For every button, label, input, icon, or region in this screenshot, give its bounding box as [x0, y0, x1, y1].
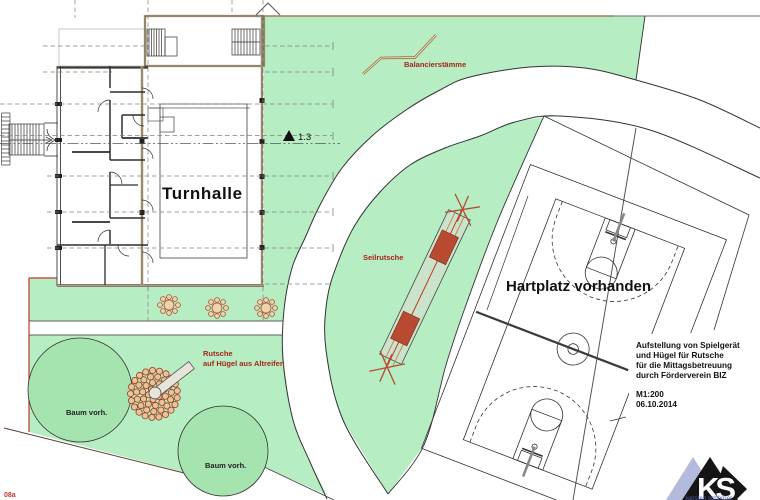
- svg-text:kersten schörner: kersten schörner: [686, 495, 732, 500]
- svg-text:Turnhalle: Turnhalle: [162, 184, 243, 203]
- svg-text:Balancierstämme: Balancierstämme: [404, 60, 466, 69]
- svg-text:Rutsche: Rutsche: [203, 349, 233, 358]
- svg-text:für die Mittagsbetreuung: für die Mittagsbetreuung: [636, 361, 732, 370]
- svg-text:Baum vorh.: Baum vorh.: [66, 408, 107, 417]
- svg-text:1.3: 1.3: [298, 132, 311, 143]
- svg-text:06.10.2014: 06.10.2014: [636, 400, 677, 409]
- svg-text:auf Hügel aus Altreifen: auf Hügel aus Altreifen: [203, 359, 285, 368]
- svg-text:durch Förderverein BIZ: durch Förderverein BIZ: [636, 371, 727, 380]
- svg-text:08a: 08a: [4, 492, 16, 499]
- svg-text:Aufstellung von Spielgerät: Aufstellung von Spielgerät: [636, 341, 740, 350]
- svg-text:Hartplatz vorhanden: Hartplatz vorhanden: [506, 278, 651, 295]
- svg-text:und Hügel für Rutsche: und Hügel für Rutsche: [636, 351, 724, 360]
- svg-text:Seilrutsche: Seilrutsche: [363, 253, 403, 262]
- svg-text:M1:200: M1:200: [636, 390, 664, 399]
- svg-text:Baum vorh.: Baum vorh.: [205, 461, 246, 470]
